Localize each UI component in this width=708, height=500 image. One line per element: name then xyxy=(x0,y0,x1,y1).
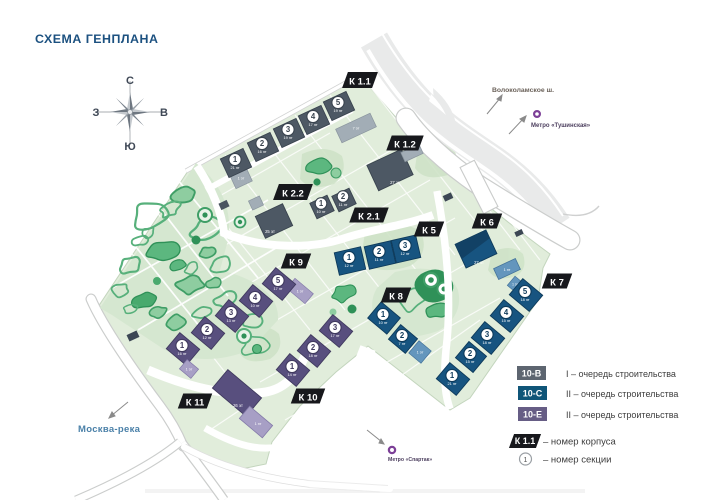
svg-text:10-С: 10-С xyxy=(523,389,543,399)
svg-text:1 эт: 1 эт xyxy=(255,422,262,426)
svg-text:Москва-река: Москва-река xyxy=(78,424,141,435)
svg-text:1 эт: 1 эт xyxy=(238,177,245,181)
svg-text:15 эт: 15 эт xyxy=(501,318,510,323)
svg-text:16 эт: 16 эт xyxy=(257,149,266,154)
svg-text:К 11: К 11 xyxy=(186,398,205,409)
svg-text:10 эт: 10 эт xyxy=(250,303,259,308)
svg-text:1: 1 xyxy=(290,362,295,371)
svg-text:С: С xyxy=(126,75,134,87)
svg-text:К 6: К 6 xyxy=(480,218,494,229)
svg-text:11 эт: 11 эт xyxy=(375,257,384,262)
svg-text:12 эт: 12 эт xyxy=(344,263,353,268)
svg-text:10-В: 10-В xyxy=(522,369,542,379)
svg-text:19 эт: 19 эт xyxy=(283,135,292,140)
svg-text:18 эт: 18 эт xyxy=(482,340,491,345)
svg-text:5: 5 xyxy=(336,98,341,107)
svg-text:7 эт: 7 эт xyxy=(399,341,406,346)
svg-text:10-Е: 10-Е xyxy=(523,410,542,420)
svg-text:1: 1 xyxy=(180,341,185,350)
svg-text:З: З xyxy=(93,107,100,119)
svg-text:14 эт: 14 эт xyxy=(287,372,296,377)
svg-text:Метро «Спартак»: Метро «Спартак» xyxy=(388,457,432,463)
svg-text:К 8: К 8 xyxy=(389,292,403,303)
svg-text:2: 2 xyxy=(341,192,346,201)
svg-text:11 эт: 11 эт xyxy=(339,202,348,207)
svg-text:2: 2 xyxy=(311,343,316,352)
svg-text:4: 4 xyxy=(504,308,509,317)
svg-text:7 эт: 7 эт xyxy=(353,127,360,131)
svg-text:26 эт: 26 эт xyxy=(233,403,243,408)
svg-text:27 эт: 27 эт xyxy=(474,260,484,265)
svg-text:21 эт: 21 эт xyxy=(447,381,456,386)
svg-text:Ю: Ю xyxy=(124,141,135,153)
svg-text:2: 2 xyxy=(400,331,405,340)
svg-text:– номер корпуса: – номер корпуса xyxy=(543,437,617,448)
svg-text:18 эт: 18 эт xyxy=(520,297,529,302)
svg-text:К 10: К 10 xyxy=(298,393,317,404)
svg-text:2: 2 xyxy=(468,349,473,358)
svg-text:1 эт: 1 эт xyxy=(417,351,424,355)
svg-text:К 9: К 9 xyxy=(289,258,303,269)
svg-text:18 эт: 18 эт xyxy=(308,353,317,358)
svg-text:К 1.1: К 1.1 xyxy=(349,77,371,88)
svg-text:10 эт: 10 эт xyxy=(378,320,387,325)
svg-text:Волоколамское ш.: Волоколамское ш. xyxy=(492,87,554,94)
svg-text:1: 1 xyxy=(524,457,528,464)
svg-text:1: 1 xyxy=(347,253,352,262)
svg-text:17 эт: 17 эт xyxy=(308,122,317,127)
svg-text:К 2.1: К 2.1 xyxy=(358,212,380,223)
svg-text:I – очередь строительства: I – очередь строительства xyxy=(566,369,676,379)
svg-text:3: 3 xyxy=(403,241,408,250)
svg-text:17 эт: 17 эт xyxy=(330,333,339,338)
svg-text:4: 4 xyxy=(311,112,316,121)
svg-text:К 2.2: К 2.2 xyxy=(282,189,304,200)
svg-text:3: 3 xyxy=(229,308,234,317)
svg-text:1: 1 xyxy=(381,310,386,319)
svg-text:К 1.2: К 1.2 xyxy=(394,140,416,151)
svg-text:1: 1 xyxy=(233,155,238,164)
svg-text:5: 5 xyxy=(276,276,281,285)
svg-text:К 7: К 7 xyxy=(550,278,564,289)
svg-text:1: 1 xyxy=(319,199,324,208)
svg-text:1 эт: 1 эт xyxy=(504,268,511,272)
svg-text:21 эт: 21 эт xyxy=(230,165,239,170)
svg-text:5: 5 xyxy=(523,287,528,296)
svg-text:1: 1 xyxy=(450,371,455,380)
svg-text:27 эт: 27 эт xyxy=(390,180,400,185)
svg-text:К 5: К 5 xyxy=(422,226,436,237)
svg-text:16 эт: 16 эт xyxy=(177,351,186,356)
svg-text:СХЕМА ГЕНПЛАНА: СХЕМА ГЕНПЛАНА xyxy=(35,32,158,46)
svg-text:3: 3 xyxy=(333,323,338,332)
svg-text:12 эт: 12 эт xyxy=(202,335,211,340)
svg-text:25 эт: 25 эт xyxy=(265,229,275,234)
svg-text:– номер секции: – номер секции xyxy=(543,455,611,466)
svg-text:II – очередь строительства: II – очередь строительства xyxy=(566,389,678,399)
svg-text:Метро «Тушинская»: Метро «Тушинская» xyxy=(531,123,591,129)
svg-text:19 эт: 19 эт xyxy=(333,108,342,113)
svg-text:15 эт: 15 эт xyxy=(465,359,474,364)
svg-text:1 эт: 1 эт xyxy=(297,290,304,294)
svg-text:К 1.1: К 1.1 xyxy=(515,436,536,446)
svg-text:13 эт: 13 эт xyxy=(226,318,235,323)
svg-text:3: 3 xyxy=(485,330,490,339)
svg-text:В: В xyxy=(160,107,168,119)
svg-text:2: 2 xyxy=(205,325,210,334)
svg-text:4: 4 xyxy=(253,293,258,302)
svg-text:II – очередь строительства: II – очередь строительства xyxy=(566,410,678,420)
svg-text:2: 2 xyxy=(260,139,265,148)
svg-text:17 эт: 17 эт xyxy=(273,286,282,291)
svg-text:3: 3 xyxy=(286,125,291,134)
svg-text:10 эт: 10 эт xyxy=(316,209,325,214)
svg-text:12 эт: 12 эт xyxy=(400,251,409,256)
svg-text:2: 2 xyxy=(377,247,382,256)
svg-text:1 эт: 1 эт xyxy=(186,368,193,372)
